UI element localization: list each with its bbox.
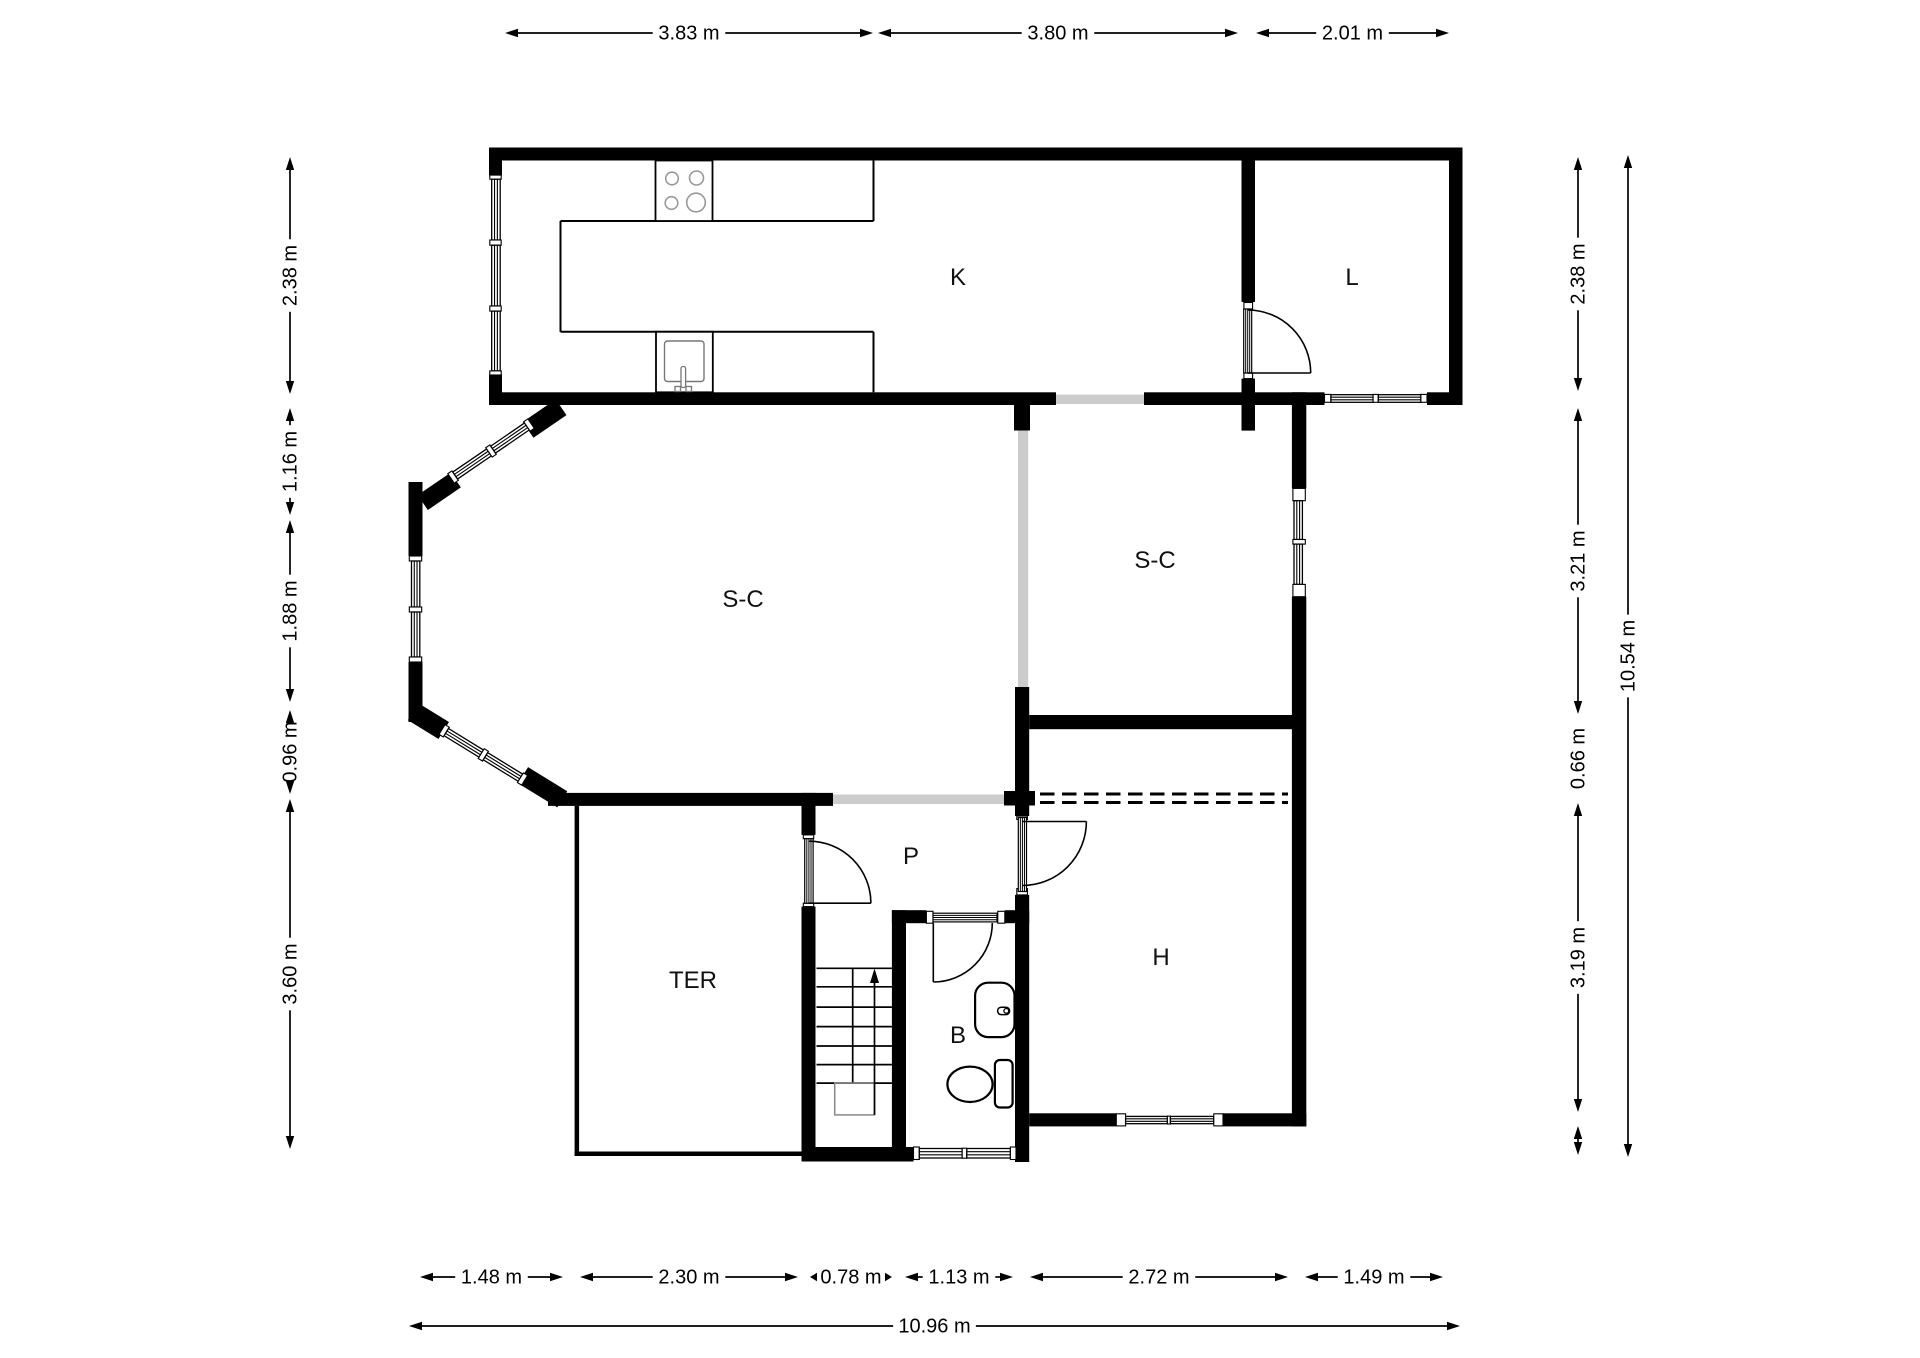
svg-text:3.19 m: 3.19 m	[1568, 927, 1590, 988]
svg-text:3.80 m: 3.80 m	[1027, 23, 1088, 45]
svg-text:1.49 m: 1.49 m	[1343, 1267, 1404, 1289]
svg-text:S-C: S-C	[1134, 547, 1175, 574]
svg-text:3.60 m: 3.60 m	[280, 943, 302, 1004]
svg-text:2.01 m: 2.01 m	[1322, 23, 1383, 45]
svg-text:1.48 m: 1.48 m	[461, 1267, 522, 1289]
svg-text:2.38 m: 2.38 m	[280, 245, 302, 306]
svg-text:10.54 m: 10.54 m	[1618, 620, 1640, 692]
svg-text:P: P	[903, 843, 919, 870]
svg-text:10.96 m: 10.96 m	[898, 1316, 970, 1338]
svg-text:2.72 m: 2.72 m	[1128, 1267, 1189, 1289]
svg-text:0.78 m: 0.78 m	[820, 1267, 881, 1289]
svg-text:L: L	[1345, 264, 1358, 291]
svg-text:1.13 m: 1.13 m	[928, 1267, 989, 1289]
svg-text:TER: TER	[669, 967, 717, 994]
svg-text:3.83 m: 3.83 m	[658, 23, 719, 45]
svg-text:2.38 m: 2.38 m	[1568, 243, 1590, 304]
svg-text:3.21 m: 3.21 m	[1568, 530, 1590, 591]
svg-text:0.96 m: 0.96 m	[280, 721, 302, 782]
svg-text:B: B	[950, 1022, 966, 1049]
svg-text:0.66 m: 0.66 m	[1568, 728, 1590, 789]
svg-text:1.88 m: 1.88 m	[280, 580, 302, 641]
svg-text:S-C: S-C	[722, 586, 763, 613]
svg-text:H: H	[1152, 944, 1169, 971]
svg-text:2.30 m: 2.30 m	[658, 1267, 719, 1289]
svg-text:1.16 m: 1.16 m	[280, 431, 302, 492]
svg-text:K: K	[950, 264, 966, 291]
